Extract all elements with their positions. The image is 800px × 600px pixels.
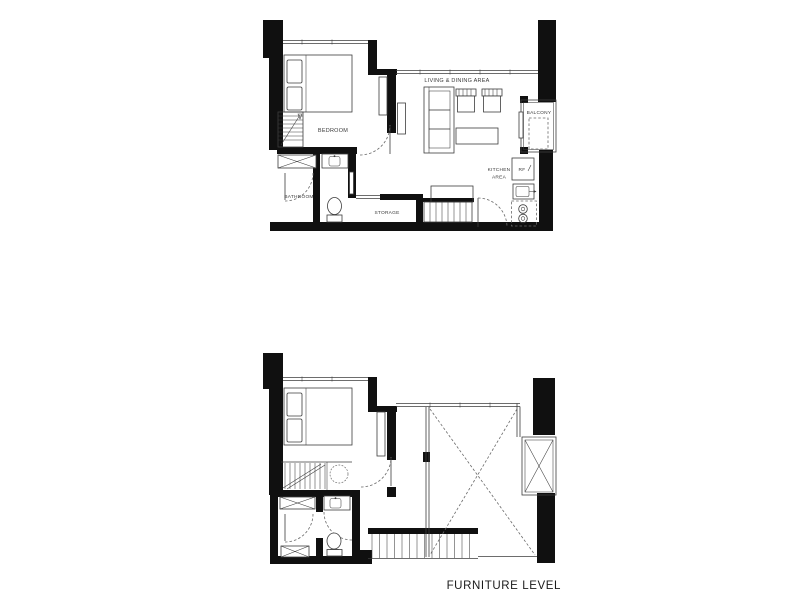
kitchen-label-line1: KITCHEN — [488, 167, 511, 173]
refrigerator: RF — [512, 158, 534, 180]
bathroom-label: BATHROOM — [284, 194, 313, 200]
floor-plan-sheet: BEDROOM LIVING & DINING AREA — [0, 0, 800, 600]
svg-text:RF: RF — [519, 167, 526, 173]
kitchen-sink — [513, 184, 537, 199]
wc-door — [350, 172, 354, 194]
balcony-door — [519, 112, 523, 138]
sheet-caption: FURNITURE LEVEL — [447, 580, 561, 592]
bedroom-door — [360, 125, 390, 155]
sofa — [424, 87, 454, 153]
armchair — [456, 89, 476, 112]
walls — [263, 353, 555, 564]
vanity-sink — [322, 154, 348, 168]
bedroom-door — [361, 457, 391, 487]
balcony-void — [522, 437, 556, 495]
bathroom-door — [285, 514, 313, 542]
bedroom-label: BEDROOM — [318, 128, 348, 134]
living-window — [396, 70, 538, 75]
balcony: BALCONY — [519, 100, 556, 152]
coffee-table — [456, 128, 498, 144]
toilet — [327, 198, 342, 223]
bed — [284, 55, 352, 112]
bedroom-window — [283, 377, 368, 382]
bed — [284, 388, 352, 445]
tv-panel-living — [398, 103, 406, 134]
bedroom-window — [283, 40, 368, 45]
living-dining-label: LIVING & DINING AREA — [424, 78, 489, 84]
kitchen-label-line2: AREA — [492, 175, 507, 181]
stairs-lower — [281, 462, 352, 490]
furniture-level-plan — [263, 353, 556, 564]
vanity-sink — [324, 496, 350, 510]
closet-box — [281, 546, 309, 557]
landing-table — [330, 465, 348, 483]
stairs-main — [424, 186, 473, 222]
shower — [278, 155, 316, 168]
storage-label: STORAGE — [374, 210, 399, 216]
armchair — [482, 89, 502, 112]
balcony-label: BALCONY — [527, 110, 552, 116]
kitchen: KITCHEN AREA RF — [488, 158, 537, 226]
toilet — [327, 533, 342, 556]
closet-box — [280, 497, 315, 509]
wardrobe — [368, 534, 478, 559]
balcony-planter — [529, 118, 548, 149]
main-level-plan: BEDROOM LIVING & DINING AREA — [263, 20, 556, 231]
tv-panel — [377, 412, 385, 456]
tv-panel-bedroom — [379, 77, 387, 115]
